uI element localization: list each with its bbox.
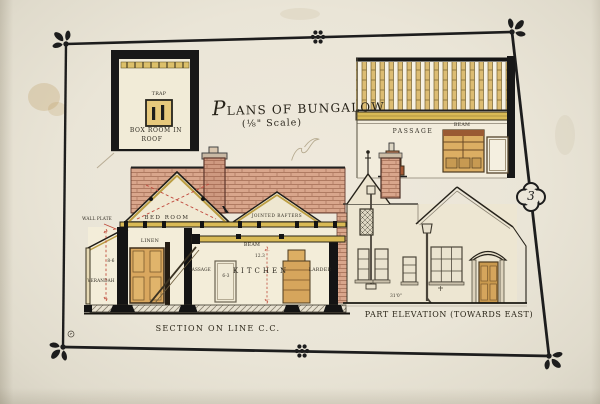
fleur-de-lis-icon xyxy=(46,24,77,55)
pencil-inscription xyxy=(289,138,323,160)
label-rafters: JOINTED RAFTERS xyxy=(252,214,302,218)
upper-part-section xyxy=(356,56,515,178)
label-box-room-line1: BOX ROOM IN xyxy=(130,128,182,134)
box-room-plan xyxy=(97,50,199,168)
collector-mark xyxy=(68,331,74,337)
dresser xyxy=(443,130,484,172)
section-drawing xyxy=(84,147,350,314)
dim-kitchen-door: 6-3 xyxy=(222,274,229,278)
page-number: 3 xyxy=(527,190,535,203)
verandah-post xyxy=(86,248,90,304)
dim-kitchen: 12.3 xyxy=(255,254,265,258)
label-kitchen: KITCHEN xyxy=(233,268,289,275)
label-passage-upper: PASSAGE xyxy=(393,129,434,135)
label-stair-passage: PASSAGE xyxy=(189,268,211,272)
trap-door xyxy=(146,100,172,126)
label-trap: TRAP xyxy=(152,92,166,97)
section-caption: SECTION ON LINE C.C. xyxy=(156,325,281,333)
label-verandah: VERANDAH xyxy=(87,279,114,283)
linen-cupboard xyxy=(130,248,164,303)
dim-verandah: 8-6 xyxy=(107,259,114,263)
lattice-window xyxy=(360,209,373,235)
label-larder: LARDER xyxy=(309,268,332,273)
label-box-room-line2: ROOF xyxy=(142,137,163,143)
elevation-caption: PART ELEVATION (TOWARDS EAST) xyxy=(365,311,533,319)
label-wall-plate: WALL PLATE xyxy=(82,217,112,221)
scanned-architectural-drawing: { "title": { "main": "PLANS OF BUNGALOW"… xyxy=(0,0,600,404)
kitchen-ceiling-beam xyxy=(192,236,345,242)
dim-elevation-width: 31'0" xyxy=(390,294,402,298)
label-beam-upper: BEAM xyxy=(454,123,470,128)
drawing-scale: (⅛" Scale) xyxy=(242,118,302,130)
fleur-de-lis-icon xyxy=(501,12,532,43)
eaves-plate xyxy=(120,222,346,227)
drawing-linework xyxy=(0,0,600,404)
door xyxy=(487,137,508,173)
elevation-chimney xyxy=(379,153,402,198)
fleur-de-lis-icon xyxy=(538,345,569,376)
rosette-icon xyxy=(311,30,326,43)
label-linen: LINEN xyxy=(141,239,159,244)
fleur-de-lis-icon xyxy=(43,336,74,367)
label-beam-section: BEAM xyxy=(244,243,260,248)
rosette-icon xyxy=(295,344,310,357)
label-bed-room: BED ROOM xyxy=(144,216,189,222)
